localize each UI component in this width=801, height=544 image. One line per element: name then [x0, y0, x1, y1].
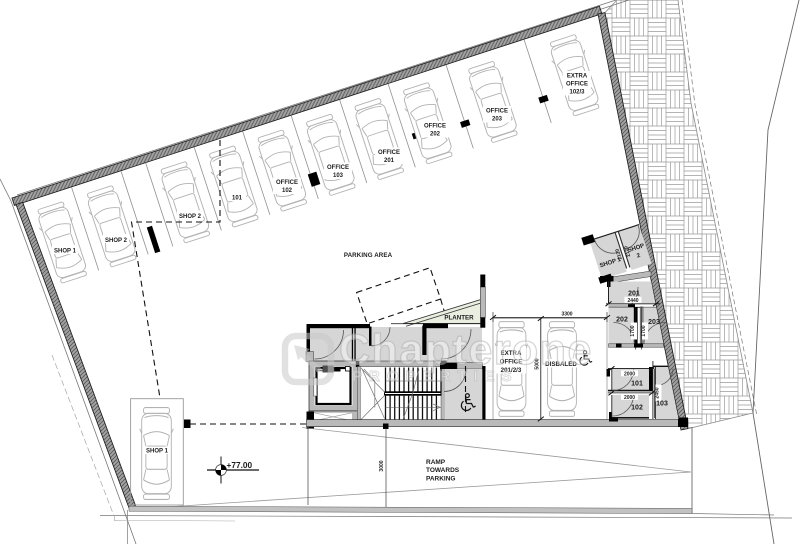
svg-text:101: 101	[631, 381, 643, 388]
svg-text:2450: 2450	[655, 387, 661, 398]
svg-text:OFFICE: OFFICE	[566, 82, 588, 88]
svg-text:2440: 2440	[627, 298, 638, 304]
svg-text:202: 202	[430, 132, 441, 138]
svg-text:TOWARDS: TOWARDS	[426, 467, 460, 474]
svg-text:3000: 3000	[379, 460, 385, 471]
svg-text:203: 203	[648, 319, 660, 326]
svg-text:SHOP 2: SHOP 2	[179, 214, 202, 220]
svg-text:OFFICE: OFFICE	[378, 150, 400, 156]
svg-text:OFFICE: OFFICE	[327, 165, 349, 171]
svg-text:3300: 3300	[561, 312, 572, 318]
svg-text:Chapterone: Chapterone	[339, 326, 593, 374]
svg-text:PARKING: PARKING	[426, 476, 456, 483]
svg-text:1700: 1700	[630, 325, 636, 336]
svg-text:EXTRA: EXTRA	[567, 74, 588, 80]
svg-text:SHOP 2: SHOP 2	[105, 238, 128, 244]
svg-text:102/3: 102/3	[569, 90, 585, 96]
svg-text:2000: 2000	[624, 395, 635, 401]
svg-text:203: 203	[492, 117, 503, 123]
svg-text:+77.00: +77.00	[227, 460, 253, 470]
svg-text:102: 102	[631, 405, 643, 412]
svg-text:103: 103	[333, 173, 344, 179]
svg-text:SHOP 1: SHOP 1	[146, 449, 169, 455]
svg-text:1700: 1700	[641, 325, 647, 336]
svg-text:PROPERTIES: PROPERTIES	[352, 368, 519, 385]
svg-text:OFFICE: OFFICE	[486, 109, 508, 115]
svg-text:SHOP 1: SHOP 1	[54, 249, 77, 255]
svg-text:201: 201	[384, 158, 395, 164]
svg-text:102: 102	[282, 188, 293, 194]
svg-text:OFFICE: OFFICE	[276, 180, 298, 186]
svg-text:PARKING AREA: PARKING AREA	[344, 252, 393, 259]
svg-text:PLANTER: PLANTER	[444, 315, 474, 322]
svg-text:101: 101	[232, 196, 243, 202]
svg-text:RAMP: RAMP	[426, 459, 446, 466]
svg-text:202: 202	[616, 317, 628, 324]
svg-text:OFFICE: OFFICE	[424, 124, 446, 130]
svg-text:2000: 2000	[624, 372, 635, 378]
svg-text:201: 201	[628, 291, 640, 298]
svg-text:103: 103	[656, 401, 668, 408]
